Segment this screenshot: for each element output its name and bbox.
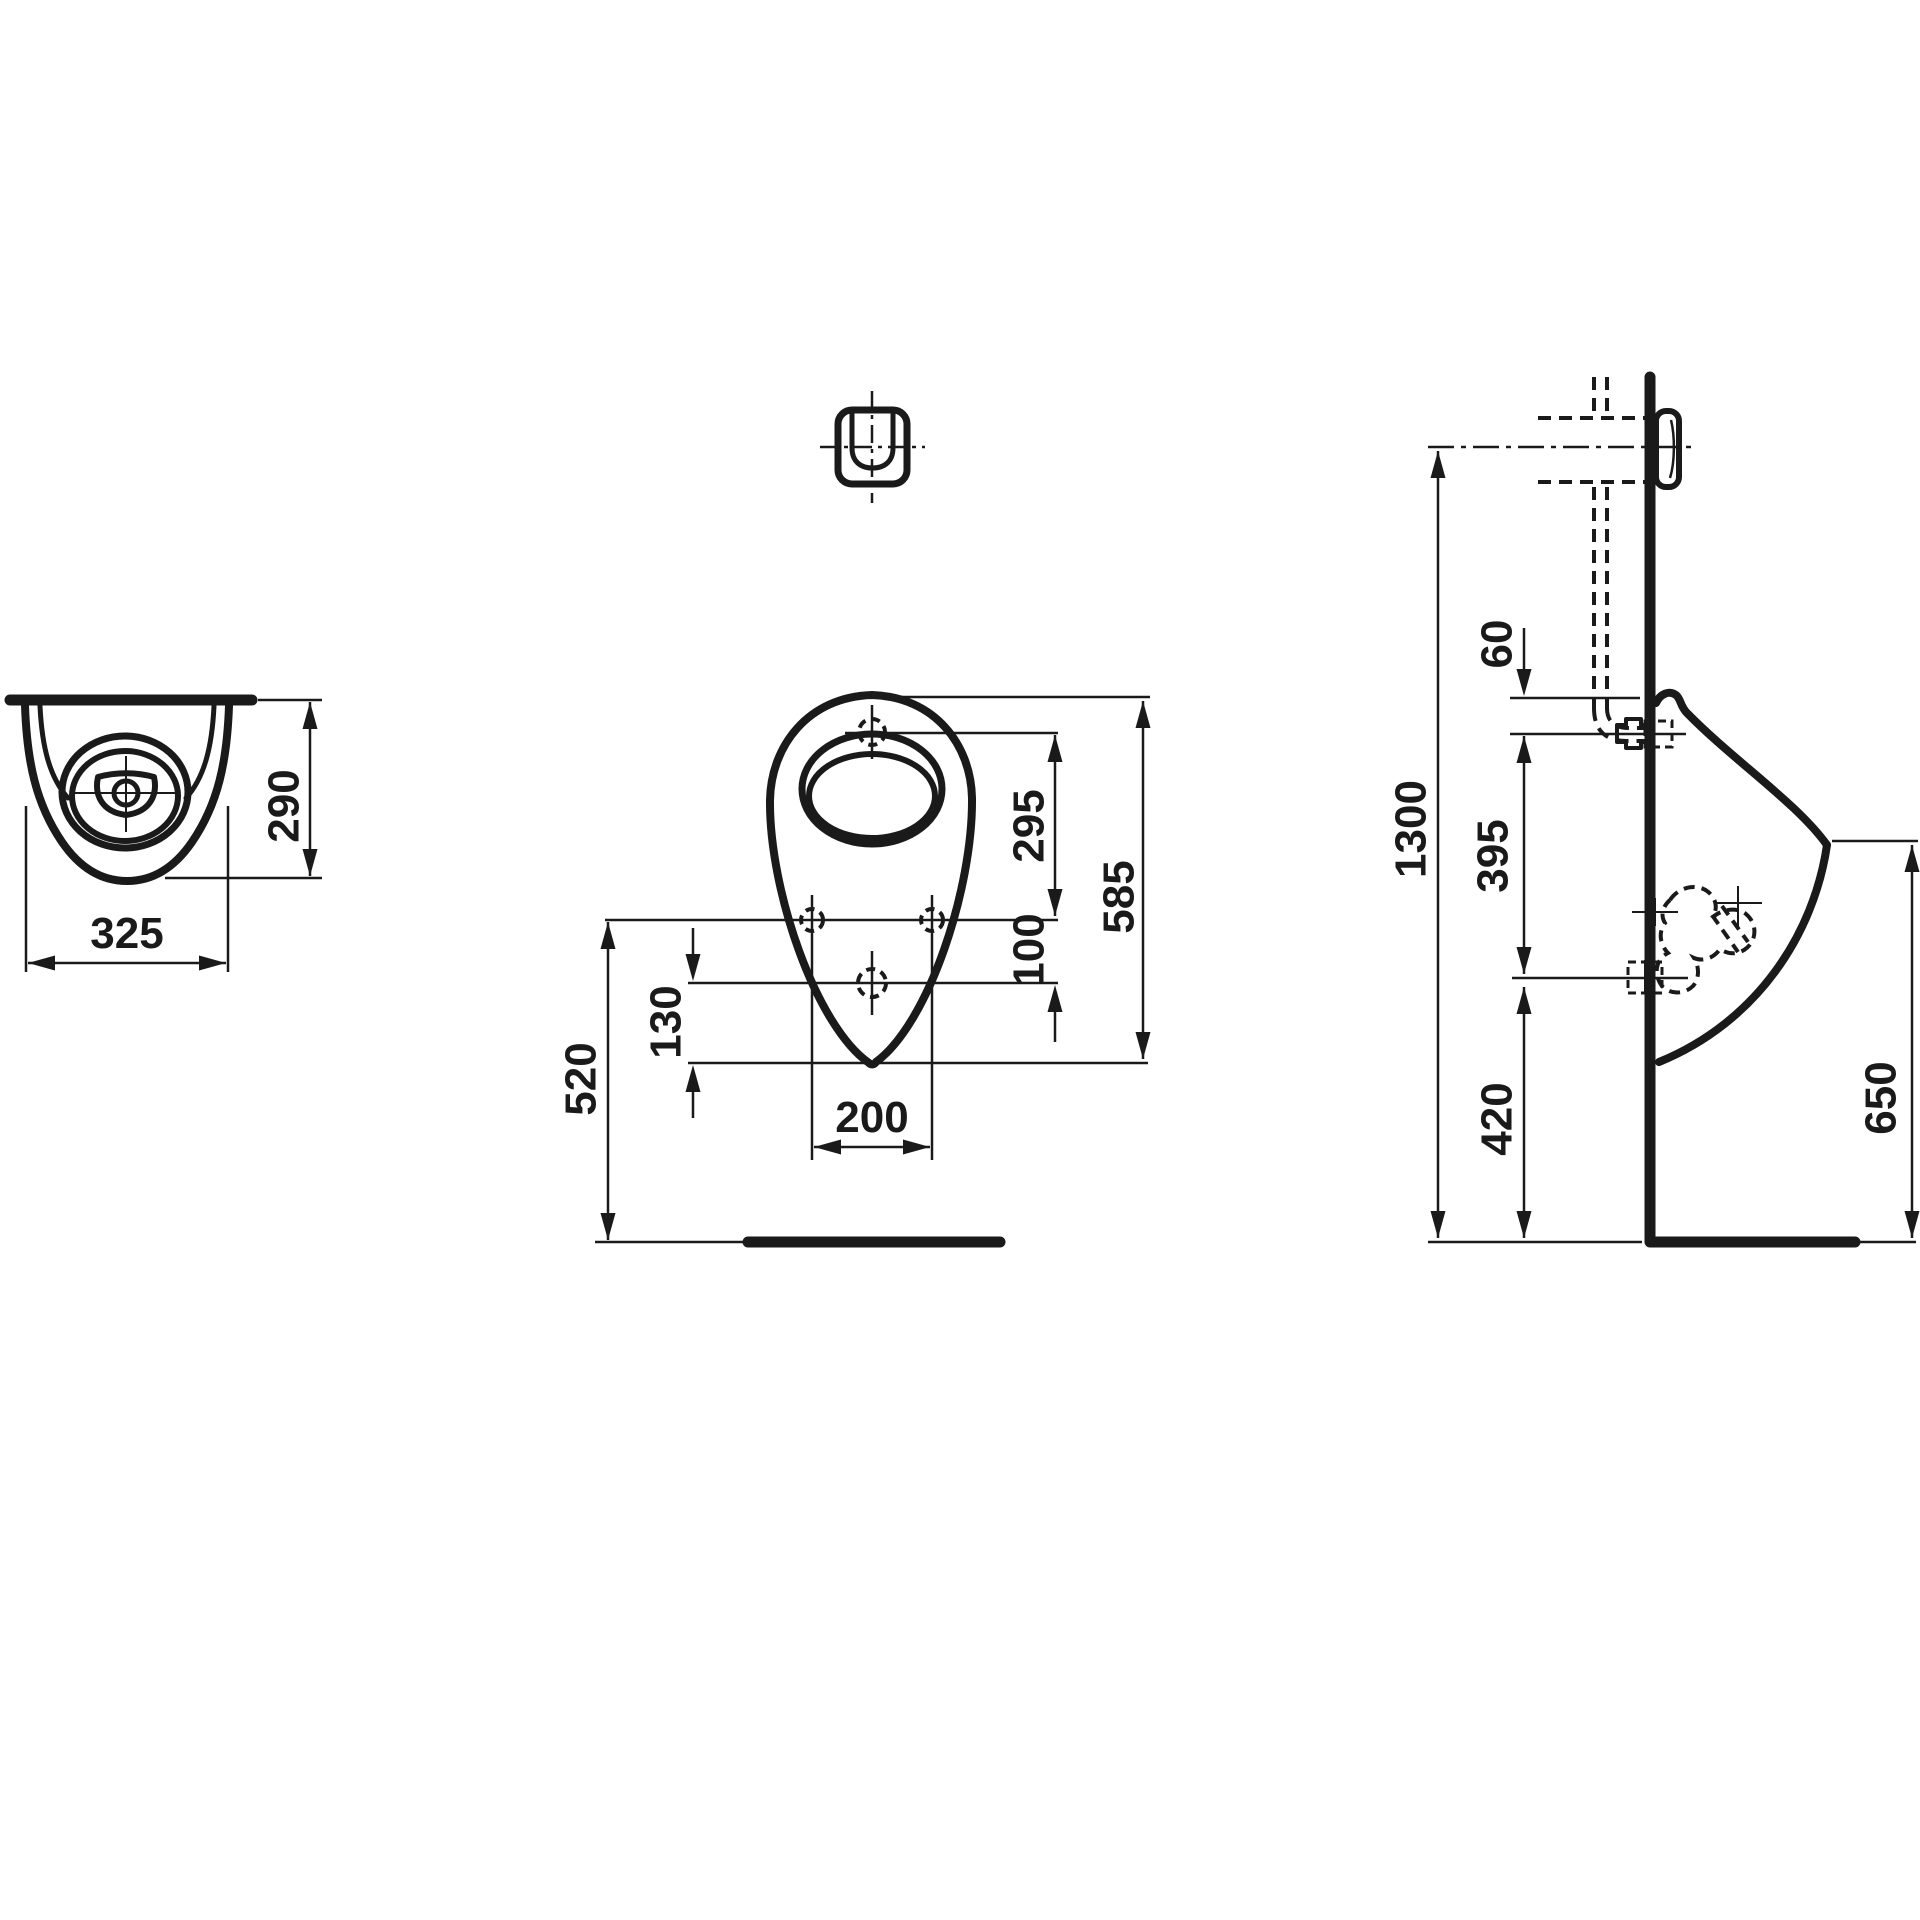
arrowhead (686, 954, 701, 981)
side-view: 60 395 420 1300 650 (1387, 377, 1920, 1242)
dim-outlet-above-floor-420: 420 (1473, 987, 1532, 1238)
arrowhead (1136, 1032, 1151, 1059)
top-view: 290 325 (10, 700, 322, 972)
arrowhead (1136, 701, 1151, 728)
arrowhead (199, 956, 226, 971)
dim-outlet-to-bottom-130: 130 (642, 928, 701, 1118)
dim-supply-centerline-1300: 1300 (1387, 451, 1446, 1238)
arrowhead (1048, 985, 1063, 1012)
dim-top-to-inlet-60: 60 (1473, 620, 1532, 696)
dim-label-650: 650 (1857, 1061, 1906, 1134)
dim-holes-above-floor-520: 520 (557, 922, 616, 1240)
arrowhead (303, 702, 318, 729)
dim-label-100: 100 (1005, 913, 1054, 986)
inlet-fitting (1510, 719, 1686, 748)
dim-label-420: 420 (1473, 1082, 1522, 1155)
dim-label-325: 325 (90, 909, 163, 958)
arrowhead (1048, 735, 1063, 762)
dim-label-295: 295 (1005, 789, 1054, 862)
dim-label-200: 200 (835, 1093, 908, 1142)
siphon-trap (1512, 886, 1762, 994)
rim-inner (809, 754, 935, 838)
dim-label-395: 395 (1469, 819, 1518, 892)
arrowhead (1905, 845, 1920, 872)
urinal-profile-bottom (1659, 845, 1827, 1062)
arrowhead (1431, 1211, 1446, 1238)
dim-label-1300: 1300 (1387, 780, 1436, 878)
dim-inlet-to-outlet-395: 395 (1469, 736, 1532, 974)
dim-hole-spacing-200: 200 (814, 1093, 930, 1155)
concealed-flush-pipe (1538, 377, 1650, 741)
dim-label-520: 520 (557, 1042, 606, 1115)
dim-label-130: 130 (642, 985, 691, 1058)
arrowhead (1048, 889, 1063, 916)
arrowhead (1517, 736, 1532, 763)
arrowhead (686, 1065, 701, 1092)
dim-holes-to-outlet-100: 100 (1005, 913, 1063, 1042)
arrowhead (1517, 669, 1532, 696)
arrowhead (28, 956, 55, 971)
arrowhead (1905, 1211, 1920, 1238)
urinal-profile-top (1656, 693, 1827, 845)
arrowhead (303, 849, 318, 876)
dim-overall-height-585: 585 (1095, 701, 1151, 1059)
arrowhead (601, 922, 616, 949)
front-view: 295 100 585 130 200 (557, 391, 1151, 1242)
dim-rim-to-holes-295: 295 (1005, 735, 1063, 916)
drawing-svg: 290 325 (0, 0, 1920, 1920)
connector-box (1656, 411, 1679, 487)
arrowhead (1517, 987, 1532, 1014)
dim-label-585: 585 (1095, 860, 1144, 933)
arrowhead (1517, 1211, 1532, 1238)
dim-label-60: 60 (1473, 620, 1522, 669)
dim-front-edge-650: 650 (1857, 845, 1920, 1238)
dim-label-290: 290 (260, 769, 309, 842)
technical-drawing-urinal: 290 325 (0, 0, 1920, 1920)
wall-floor-section (1650, 377, 1855, 1242)
arrowhead (1431, 451, 1446, 478)
arrowhead (1517, 947, 1532, 974)
flush-connector-front (820, 391, 925, 503)
arrowhead (601, 1213, 616, 1240)
connector-box-inner (1670, 420, 1674, 478)
